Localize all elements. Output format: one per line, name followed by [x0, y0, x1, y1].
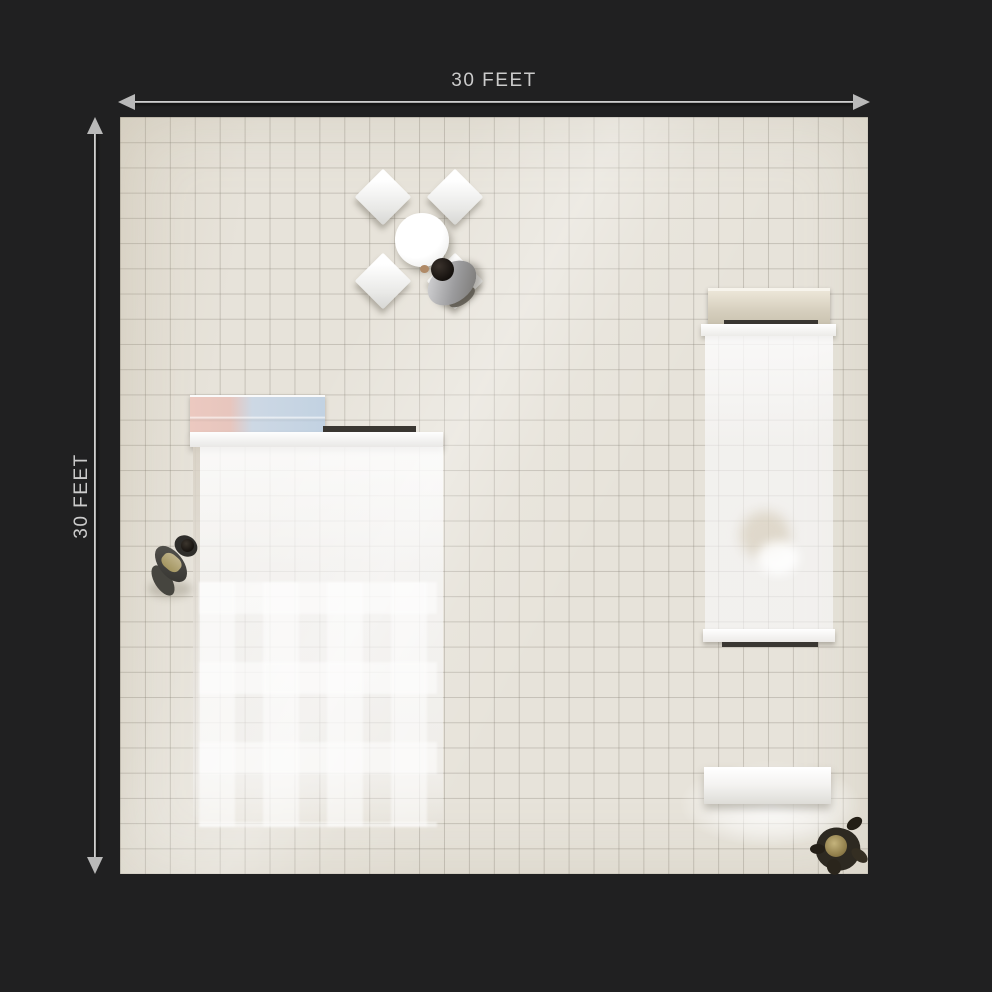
dimension-top-label: 30 FEET [118, 70, 870, 92]
chair-top-left [355, 169, 412, 226]
booth-shelf-pattern [199, 582, 437, 827]
dimension-left-label: 30 FEET [71, 453, 93, 538]
canopy-bottom-slot [722, 642, 818, 647]
canopy-bottom-bar [703, 629, 835, 642]
reception-counter [704, 767, 831, 804]
person-at-counter-arm [810, 844, 825, 854]
dimension-top: 30 FEET [118, 70, 870, 106]
seated-person-hands [420, 265, 429, 273]
canopy-translucent-panel [705, 336, 833, 632]
arrow-up-icon [87, 117, 103, 134]
booth-canopy-panel [193, 447, 443, 832]
canopy-top-bar [701, 324, 836, 336]
arrow-left-icon [118, 94, 135, 110]
person-walking [144, 528, 202, 606]
dimension-left: 30 FEET [72, 117, 108, 874]
left-display-booth [186, 393, 446, 838]
arrow-down-icon [87, 857, 103, 874]
person-at-counter [812, 816, 866, 878]
person-walking-head [181, 539, 194, 552]
person-at-counter-head [825, 835, 847, 857]
booth-header-graphic [190, 395, 325, 435]
seated-person-head [431, 258, 454, 281]
booth-counter-bar [190, 432, 443, 447]
figure-under-canopy-highlight [757, 541, 799, 575]
cafe-table-set [352, 172, 492, 322]
booth-canopy-highlight [200, 447, 443, 572]
chair-bottom-left [355, 253, 412, 310]
right-canopy-stand [698, 283, 838, 655]
arrow-right-icon [853, 94, 870, 110]
floor-plan-scene: 30 FEET 30 FEET [0, 0, 992, 992]
dimension-left-line [94, 132, 96, 859]
dimension-top-line [133, 101, 855, 103]
